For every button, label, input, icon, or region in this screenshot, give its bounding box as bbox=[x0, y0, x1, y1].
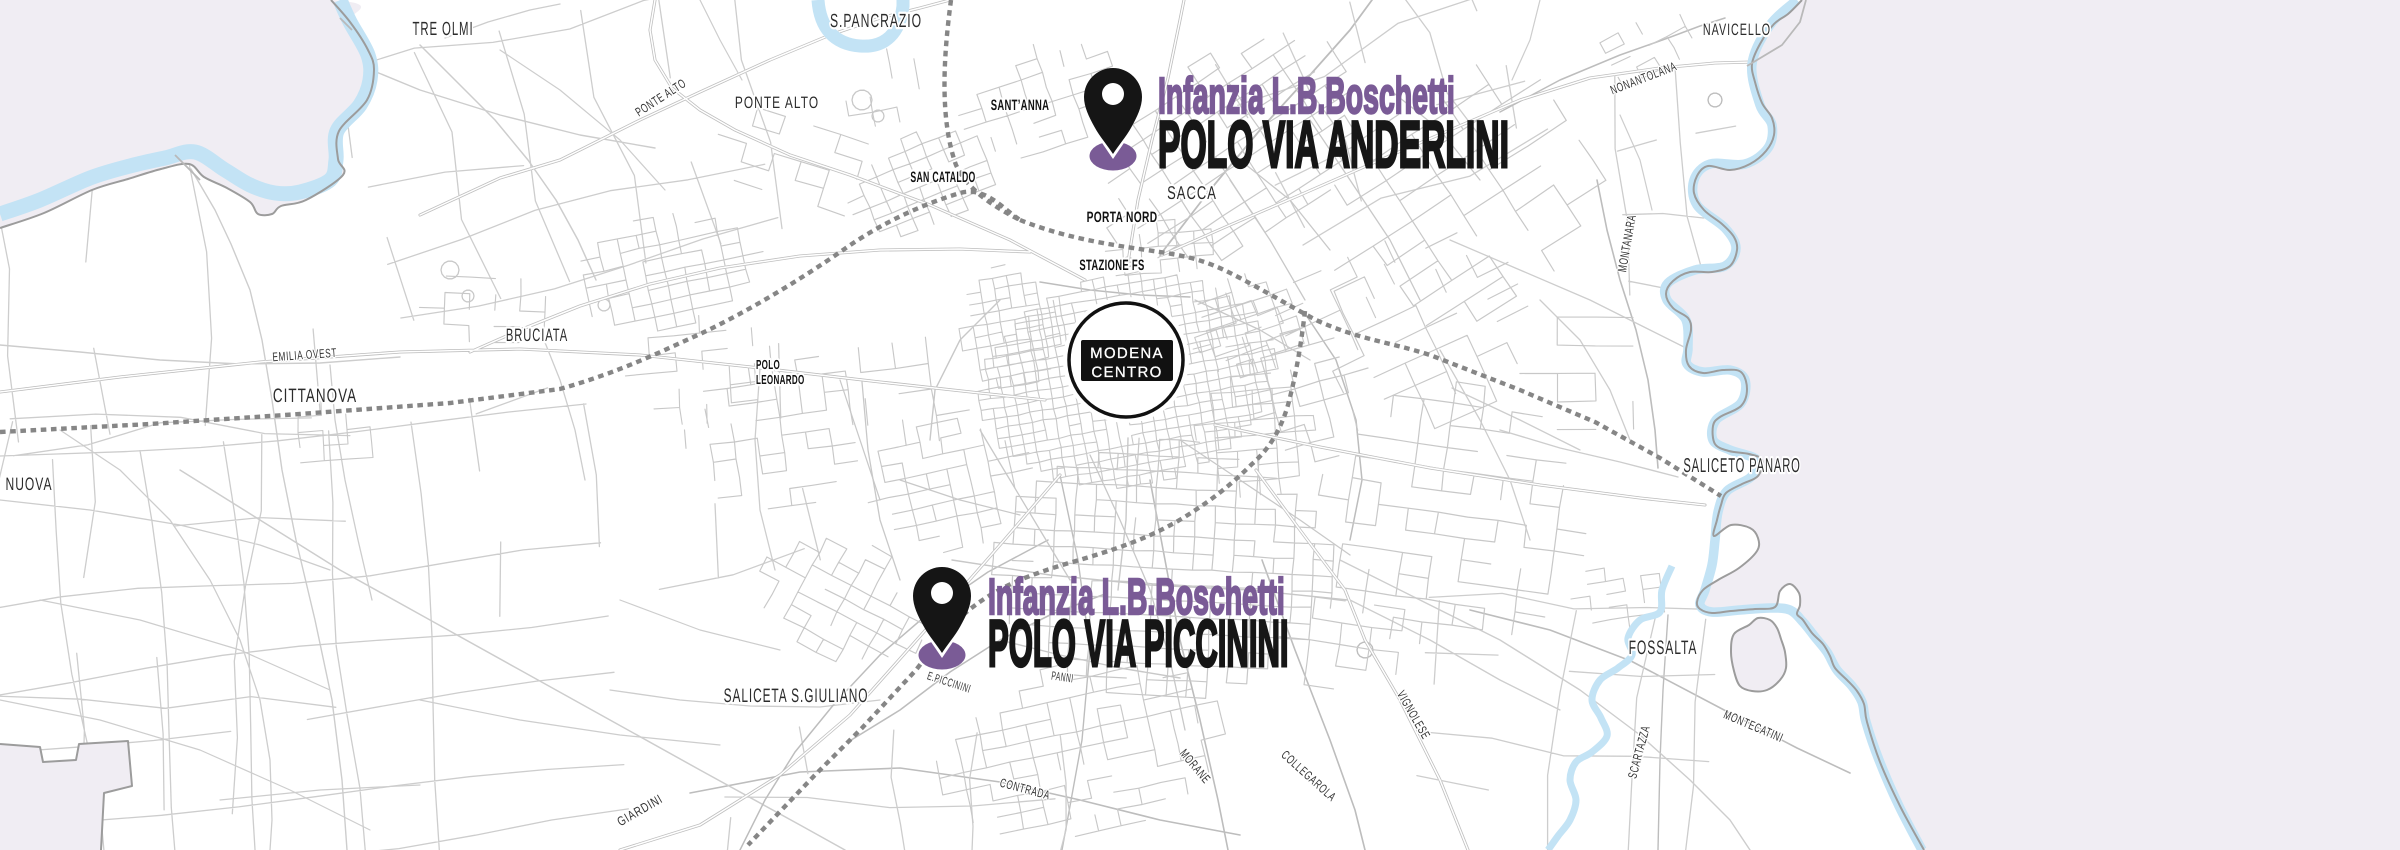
svg-text:BRUCIATA: BRUCIATA bbox=[506, 325, 568, 345]
svg-text:SANT’ANNA: SANT’ANNA bbox=[991, 97, 1049, 114]
svg-text:SACCA: SACCA bbox=[1167, 182, 1217, 203]
svg-text:S.PANCRAZIO: S.PANCRAZIO bbox=[830, 11, 922, 32]
svg-text:NUOVA: NUOVA bbox=[5, 474, 52, 494]
svg-text:SALICETA S.GIULIANO: SALICETA S.GIULIANO bbox=[724, 685, 869, 707]
svg-text:SAN CATALDO: SAN CATALDO bbox=[910, 169, 975, 186]
svg-text:FOSSALTA: FOSSALTA bbox=[1629, 637, 1698, 659]
svg-text:NAVICELLO: NAVICELLO bbox=[1703, 21, 1771, 39]
svg-text:POLO: POLO bbox=[756, 357, 780, 372]
svg-text:TRE OLMI: TRE OLMI bbox=[412, 19, 473, 40]
svg-text:SALICETO PANARO: SALICETO PANARO bbox=[1683, 455, 1800, 477]
svg-text:PORTA NORD: PORTA NORD bbox=[1087, 209, 1158, 226]
svg-text:LEONARDO: LEONARDO bbox=[756, 372, 805, 387]
svg-text:STAZIONE FS: STAZIONE FS bbox=[1079, 257, 1144, 274]
svg-text:MODENA: MODENA bbox=[1090, 345, 1164, 362]
svg-text:POLO VIA PICCININI: POLO VIA PICCININI bbox=[988, 606, 1288, 680]
svg-text:CITTANOVA: CITTANOVA bbox=[273, 385, 357, 407]
svg-text:CENTRO: CENTRO bbox=[1091, 364, 1162, 381]
svg-text:POLO VIA ANDERLINI: POLO VIA ANDERLINI bbox=[1158, 107, 1509, 181]
svg-text:PONTE ALTO: PONTE ALTO bbox=[735, 94, 819, 112]
